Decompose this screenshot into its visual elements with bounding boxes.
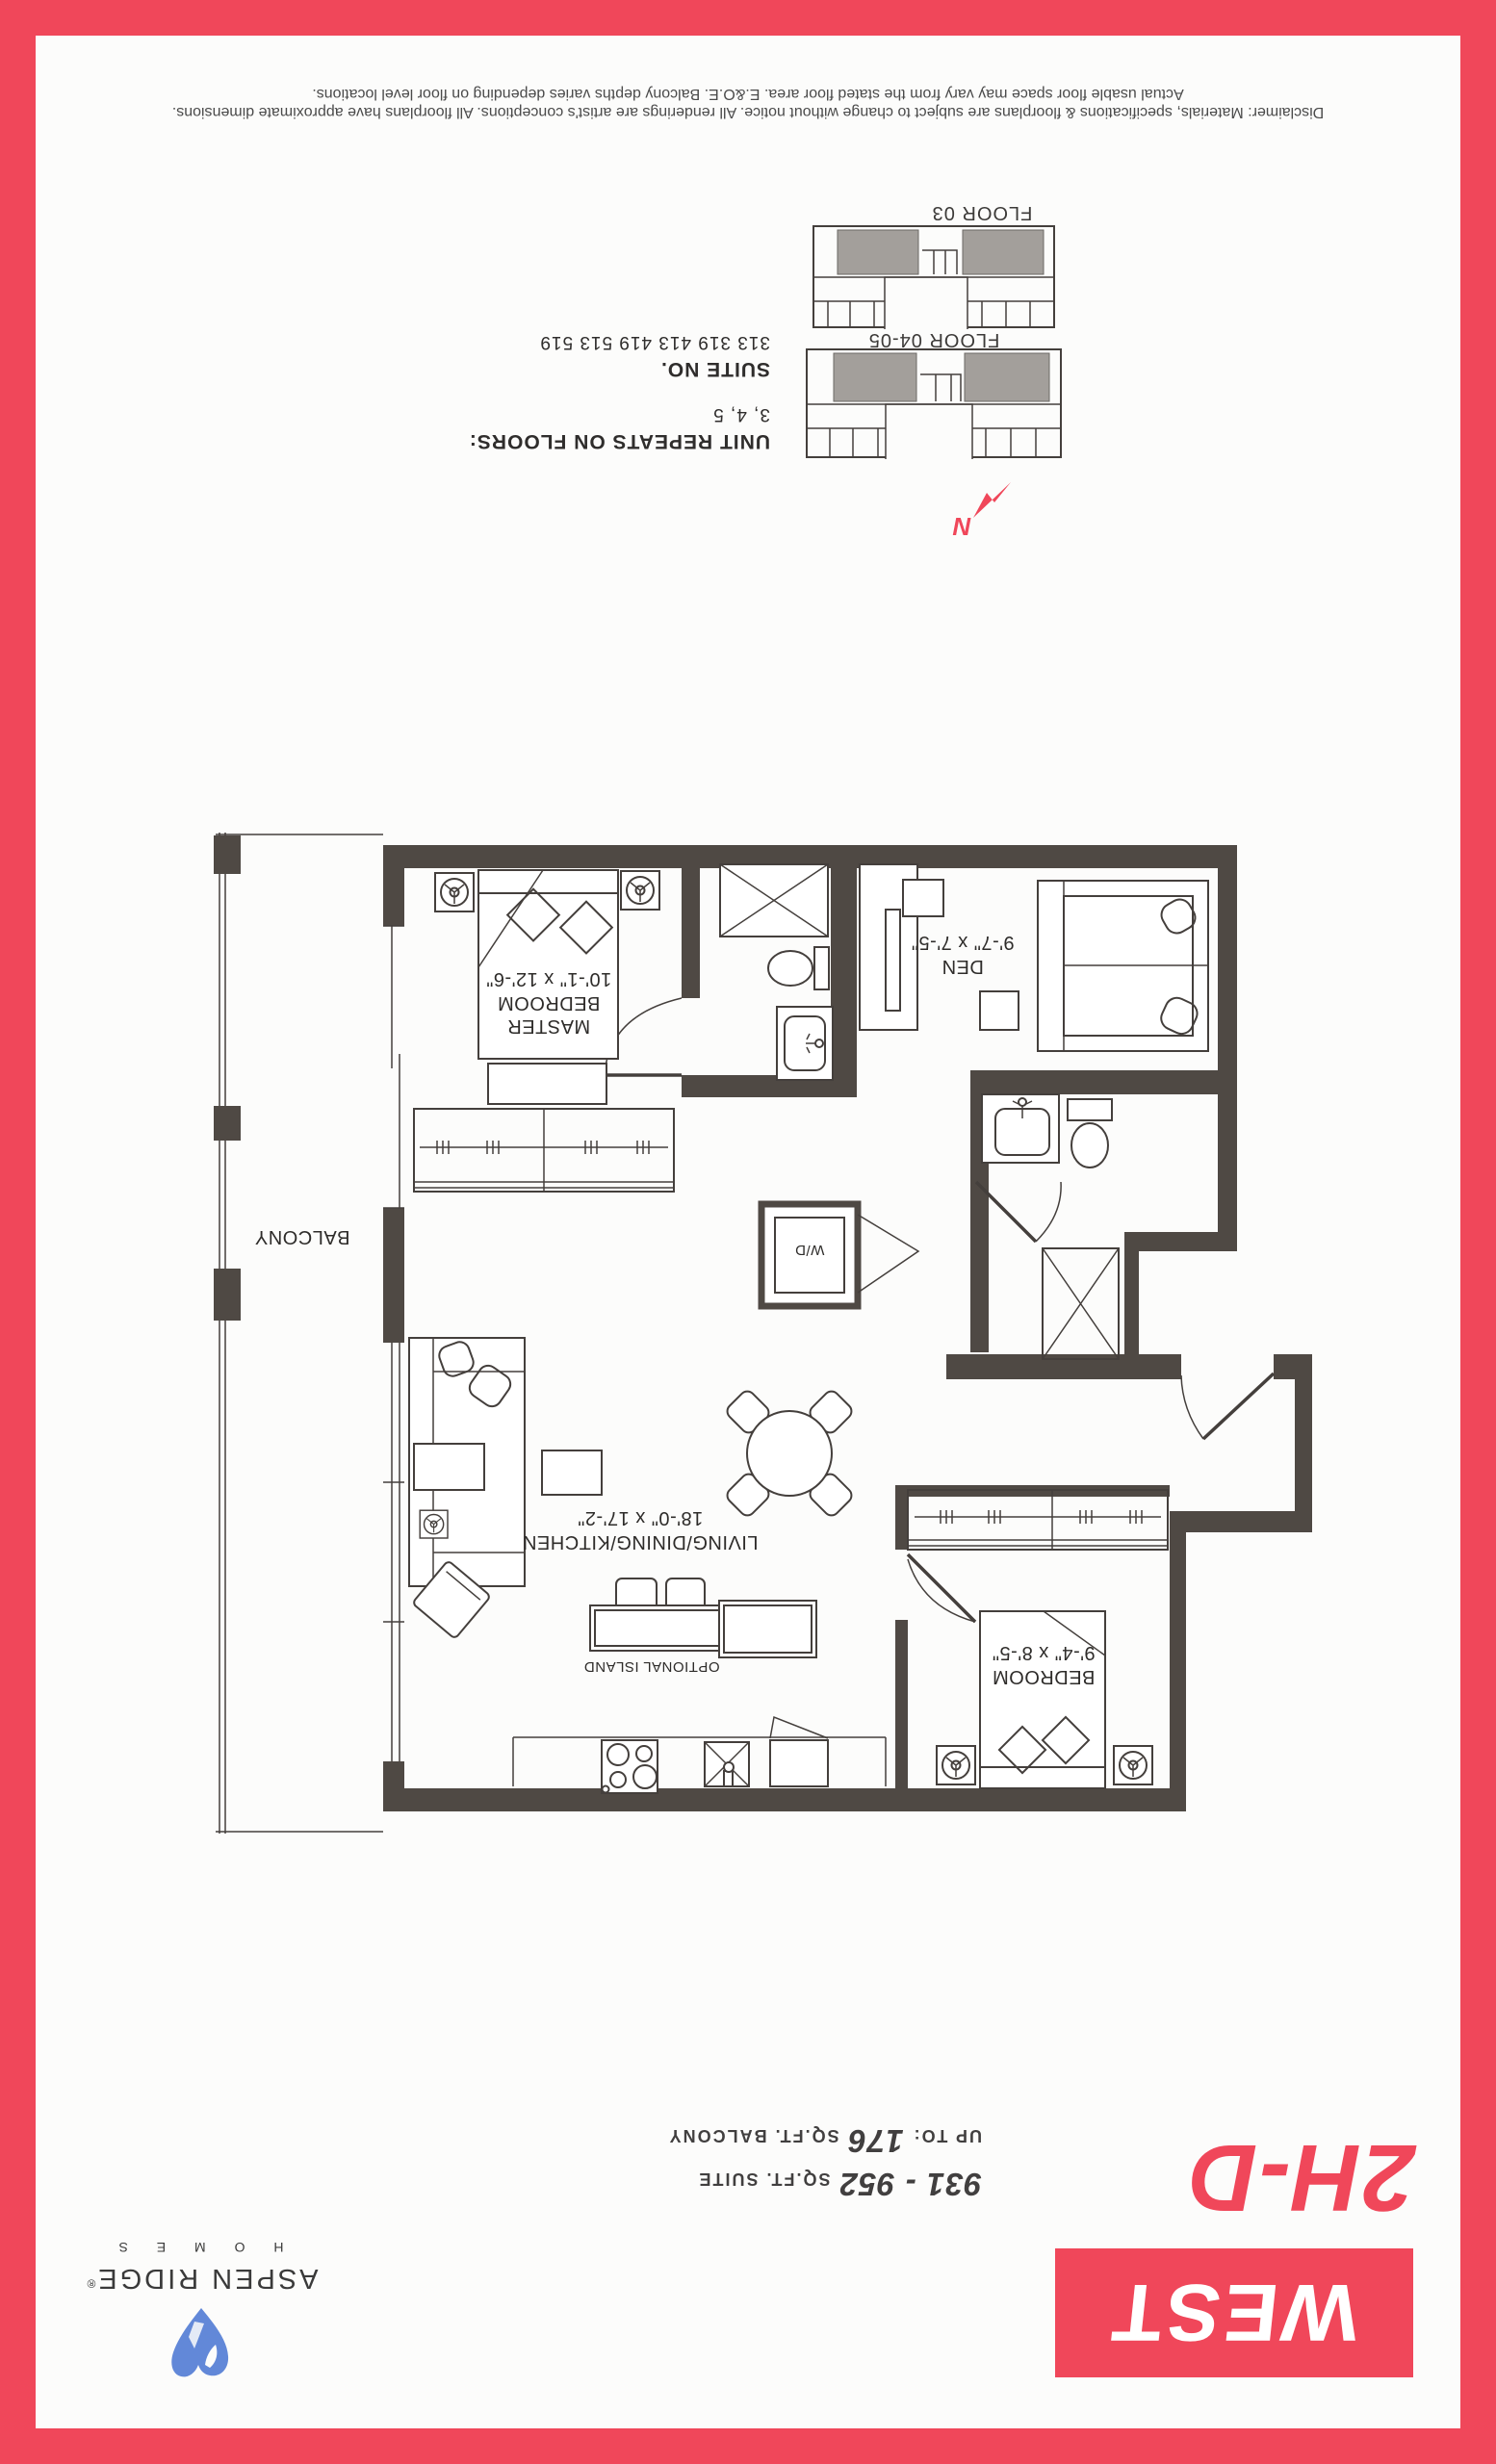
- bath-vanity-icon: [982, 1094, 1059, 1163]
- balcony-area-unit: SQ.FT. BALCONY: [668, 2125, 839, 2145]
- den-label: DEN: [941, 956, 984, 977]
- registered-mark: ®: [84, 2277, 95, 2291]
- bedroom-closet-icon: [908, 1490, 1168, 1550]
- bath-toilet-icon: [1068, 1099, 1112, 1168]
- disclaimer: Disclaimer: Materials, specifications & …: [0, 85, 1496, 121]
- plan-code: 2H-D: [1187, 2131, 1415, 2225]
- bedroom-label: BEDROOM: [993, 1666, 1096, 1687]
- optional-island-label: OPTIONAL ISLAND: [583, 1658, 719, 1675]
- balcony-area-line: UP TO: 176 SQ.FT. BALCONY: [668, 2122, 982, 2159]
- balcony-wall-windows: [383, 926, 404, 1761]
- suite-info-block: UNIT REPEATS ON FLOORS: 3, 4, 5 SUITE NO…: [469, 331, 770, 452]
- unit-repeats-label: UNIT REPEATS ON FLOORS:: [469, 429, 770, 452]
- balcony-area-value: 176: [848, 2122, 904, 2159]
- keyplan-lower-label: FLOOR 03: [932, 202, 1033, 223]
- second-bedroom: [908, 1490, 1168, 1788]
- bedroom-dims: 9'-4" x 8'-5": [992, 1642, 1095, 1663]
- kitchen-sink-icon: [705, 1742, 749, 1786]
- suite-area-line: 931 - 952 SQ.FT. SUITE: [668, 2166, 982, 2202]
- master-closet-icon: [414, 1109, 674, 1192]
- washer-dryer-label: W/D: [795, 1242, 825, 1258]
- project-logo-box: WEST: [1055, 2248, 1413, 2377]
- den-dims: 9'-7" x 7'-5": [911, 932, 1014, 953]
- dining-table-icon: [724, 1388, 854, 1518]
- cooktop-icon: [602, 1740, 658, 1793]
- keyplan-upper-label: FLOOR 04-05: [868, 329, 1000, 350]
- project-logo-text: WEST: [1105, 2267, 1364, 2360]
- master-label-1: MASTER: [507, 1015, 590, 1037]
- builder-subtitle: H O M E S: [76, 2240, 326, 2255]
- side-table-icon: [414, 1444, 484, 1490]
- coffee-table-icon: [542, 1450, 602, 1495]
- living-dims: 18'-0" x 17'-2": [578, 1507, 704, 1528]
- ensuite-sink-icon: [777, 1007, 833, 1080]
- room-labels: MASTER BEDROOM 10'-1" x 12'-6" DEN 9'-7"…: [254, 932, 1095, 1687]
- bedroom-bed-icon: [980, 1611, 1105, 1788]
- floor-plan: OPTIONAL ISLAND: [187, 799, 1352, 1858]
- living-label: LIVING/DINING/KITCHEN: [523, 1531, 759, 1553]
- suite-area-value: 931 - 952: [839, 2166, 982, 2202]
- balcony: [214, 833, 383, 1834]
- builder-name: ASPEN RIDGE®: [76, 2262, 326, 2294]
- den-table-icon: [980, 991, 1019, 1030]
- suite-no-value: 313 319 413 419 513 519: [469, 331, 770, 352]
- den: [860, 864, 1208, 1051]
- keyplan-floor-04-05: [807, 349, 1061, 459]
- north-label: N: [952, 512, 971, 541]
- north-compass-icon: N: [952, 482, 1011, 541]
- suite-area-unit: SQ.FT. SUITE: [698, 2169, 831, 2189]
- suite-no-label: SUITE NO.: [469, 357, 770, 380]
- unit-repeats-value: 3, 4, 5: [469, 403, 770, 424]
- disclaimer-line-2: Actual usable floor space may vary from …: [0, 85, 1496, 103]
- area-stats: 931 - 952 SQ.FT. SUITE UP TO: 176 SQ.FT.…: [668, 2122, 982, 2202]
- fridge-icon: [770, 1717, 828, 1786]
- dresser-icon: [488, 1064, 606, 1104]
- shower-icon: [720, 864, 828, 937]
- builder-logo-icon: [169, 2306, 233, 2383]
- rotated-content: WEST 2H-D 931 - 952 SQ.FT. SUITE UP TO: …: [0, 0, 1496, 2464]
- master-dims: 10'-1" x 12'-6": [486, 968, 612, 989]
- brochure-page: WEST 2H-D 931 - 952 SQ.FT. SUITE UP TO: …: [0, 0, 1496, 2464]
- kitchen-island: [590, 1578, 816, 1657]
- ensuite-bath: [720, 864, 833, 1080]
- balcony-area-prefix: UP TO:: [913, 2125, 982, 2145]
- kitchen: OPTIONAL ISLAND: [513, 1578, 886, 1793]
- balcony-label: BALCONY: [254, 1226, 349, 1247]
- master-label-2: BEDROOM: [498, 992, 601, 1014]
- washer-dryer-icon: [761, 1204, 918, 1306]
- builder-logo: ASPEN RIDGE® H O M E S: [76, 2240, 326, 2383]
- entry-closet-icon: [1043, 1248, 1119, 1359]
- ensuite-toilet-icon: [768, 947, 829, 989]
- main-bath: W/D: [761, 1094, 1119, 1359]
- den-sofa-icon: [1038, 881, 1208, 1051]
- disclaimer-line-1: Disclaimer: Materials, specifications & …: [0, 103, 1496, 121]
- keyplan-floor-03: [813, 226, 1054, 329]
- key-plans: N FLOOR 04-05: [784, 197, 1072, 549]
